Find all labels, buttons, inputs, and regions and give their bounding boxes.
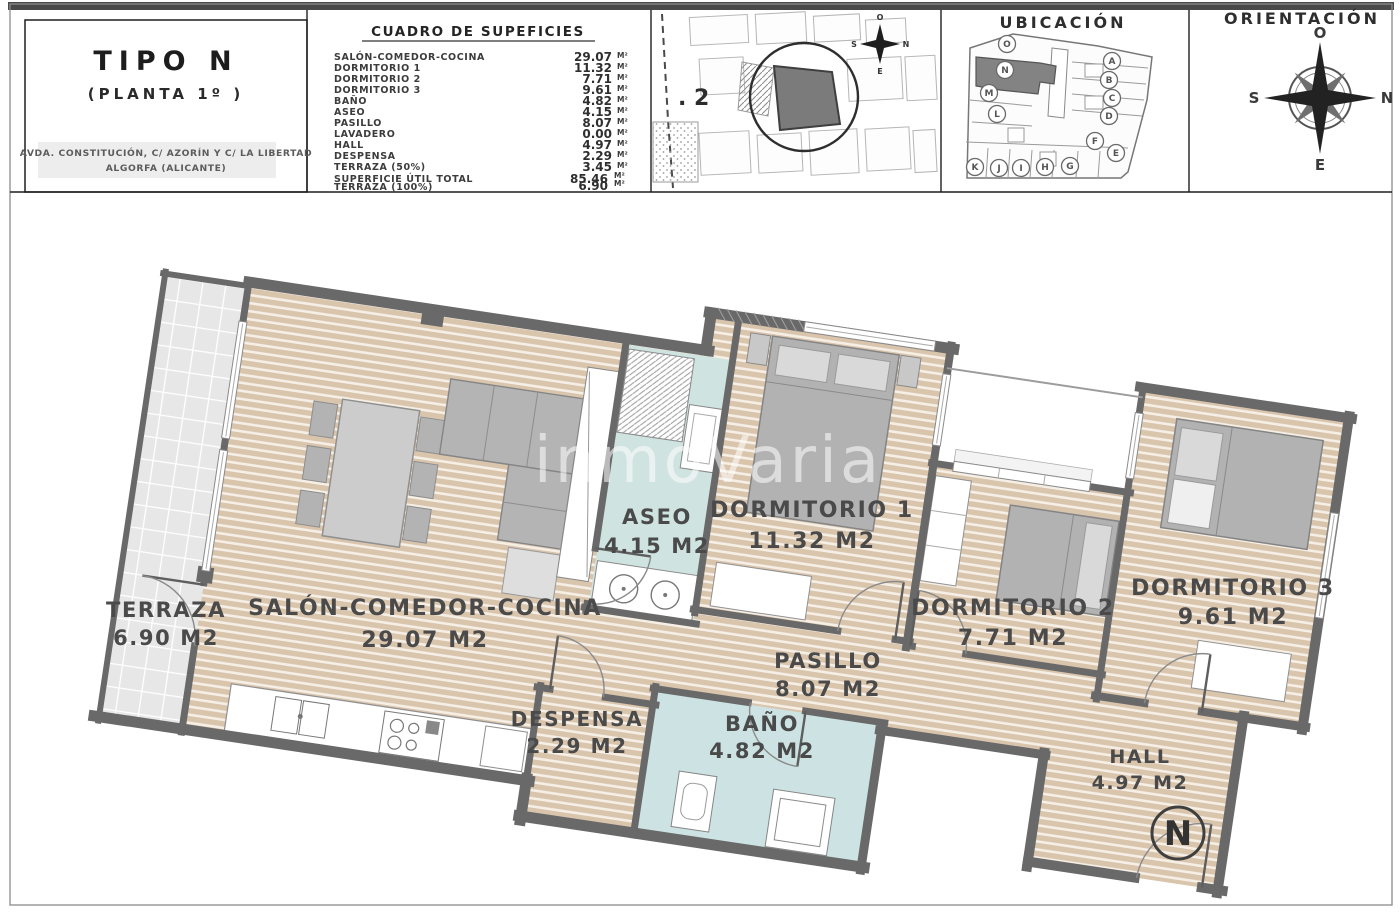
ubicacion-block-plan: O N M L A B C D F E K J I H G — [966, 34, 1152, 178]
svg-text:ASEO: ASEO — [334, 107, 365, 118]
kitchen-sink — [271, 697, 302, 734]
svg-text:G: G — [1066, 162, 1073, 172]
room-label-dorm1: DORMITORIO 1 — [710, 498, 914, 523]
room-label-terraza: TERRAZA — [106, 598, 226, 622]
svg-text:DORMITORIO 2: DORMITORIO 2 — [334, 74, 421, 85]
room-area-hall: 4.97 M2 — [1092, 772, 1189, 794]
svg-text:6.90: 6.90 — [578, 179, 608, 193]
area-table-totals: SUPERFICIE ÚTIL TOTAL85.46M² TERRAZA (10… — [334, 171, 625, 193]
floorplan-drawing — [88, 225, 1355, 916]
room-area-terraza: 6.90 M2 — [113, 626, 219, 650]
svg-text:M²: M² — [617, 106, 628, 115]
svg-text:N: N — [1001, 66, 1009, 76]
room-area-despensa: 2.29 M2 — [526, 734, 627, 758]
area-table-rows: SALÓN-COMEDOR-COCINA29.07M² DORMITORIO 1… — [334, 50, 628, 174]
title-block-panel: TIPO N (PLANTA 1º ) AVDA. CONSTITUCIÓN, … — [20, 20, 313, 192]
svg-text:M²: M² — [617, 84, 628, 93]
svg-text:M²: M² — [617, 95, 628, 104]
svg-text:M²: M² — [617, 150, 628, 159]
room-area-dorm1: 11.32 M2 — [748, 529, 875, 554]
toilet — [671, 771, 717, 832]
svg-text:M²: M² — [617, 161, 628, 170]
room-label-hall: HALL — [1109, 746, 1170, 768]
svg-text:DORMITORIO 3: DORMITORIO 3 — [334, 85, 421, 96]
siteplan-panel: . 2 O N S E — [653, 12, 937, 188]
plan-floor-subtitle: (PLANTA 1º ) — [88, 85, 244, 103]
room-label-dorm3: DORMITORIO 3 — [1131, 576, 1335, 601]
svg-text:M²: M² — [614, 179, 625, 188]
floorplan-sheet: TIPO N (PLANTA 1º ) AVDA. CONSTITUCIÓN, … — [0, 0, 1400, 916]
washing-machine — [765, 789, 835, 856]
room-label-dorm2: DORMITORIO 2 — [911, 596, 1115, 621]
ubicacion-panel: UBICACIÓN O N M L A B C D F E — [966, 13, 1152, 178]
svg-text:A: A — [1109, 57, 1116, 67]
svg-text:L: L — [994, 110, 1000, 120]
svg-text:TERRAZA (100%): TERRAZA (100%) — [334, 182, 433, 193]
area-table-title: CUADRO DE SUPEFICIES — [371, 24, 585, 40]
svg-text:M²: M² — [617, 128, 628, 137]
svg-text:LAVADERO: LAVADERO — [334, 129, 395, 140]
site-compass-top: O — [877, 13, 884, 22]
watermark: inmoVaria — [534, 424, 882, 498]
stove — [379, 711, 445, 761]
svg-text:O: O — [1003, 40, 1011, 50]
area-table-panel: CUADRO DE SUPEFICIES SALÓN-COMEDOR-COCIN… — [334, 24, 628, 193]
top-bar — [8, 2, 1394, 10]
svg-text:DESPENSA: DESPENSA — [334, 151, 396, 162]
svg-text:DORMITORIO 1: DORMITORIO 1 — [334, 63, 421, 74]
svg-text:C: C — [1109, 94, 1116, 104]
site-compass-bottom: E — [877, 67, 882, 76]
side-table — [502, 547, 560, 600]
room-label-bano: BAÑO — [725, 711, 799, 736]
room-label-pasillo: PASILLO — [774, 649, 882, 673]
site-parcel-label: . 2 — [678, 86, 709, 111]
svg-text:H: H — [1041, 163, 1049, 173]
room-area-aseo: 4.15 M2 — [604, 534, 710, 558]
svg-text:F: F — [1092, 137, 1098, 147]
svg-text:I: I — [1019, 164, 1022, 174]
table-total-row: TERRAZA (100%)6.90M² — [334, 179, 625, 193]
svg-text:M: M — [985, 89, 994, 99]
compass-right-letter: N — [1381, 89, 1394, 107]
svg-text:J: J — [996, 164, 1000, 174]
site-stippled-block — [653, 122, 698, 182]
svg-text:M²: M² — [617, 51, 628, 60]
ubicacion-title: UBICACIÓN — [1000, 13, 1127, 32]
site-compass-right: N — [903, 40, 910, 49]
svg-text:M²: M² — [617, 117, 628, 126]
site-highlighted-parcel — [774, 66, 840, 130]
sheet-svg: TIPO N (PLANTA 1º ) AVDA. CONSTITUCIÓN, … — [0, 0, 1400, 916]
room-area-pasillo: 8.07 M2 — [775, 677, 881, 701]
svg-text:PASILLO: PASILLO — [334, 118, 382, 129]
site-compass-left: S — [851, 40, 857, 49]
unit-marker-letter: N — [1164, 814, 1192, 854]
address-line1: AVDA. CONSTITUCIÓN, C/ AZORÍN Y C/ LA LI… — [20, 147, 313, 159]
kitchen-appliance — [480, 726, 527, 772]
compass-bottom-letter: E — [1315, 156, 1325, 174]
room-label-salon: SALÓN-COMEDOR-COCINA — [248, 595, 602, 621]
address-line2: ALGORFA (ALICANTE) — [106, 163, 227, 174]
plan-type-title: TIPO N — [93, 46, 238, 77]
compass-top-letter: O — [1314, 24, 1327, 42]
siteplan-map: . 2 O N S E — [653, 12, 937, 188]
svg-text:B: B — [1106, 76, 1113, 86]
room-area-dorm2: 7.71 M2 — [958, 626, 1068, 651]
svg-text:M²: M² — [617, 139, 628, 148]
compass-left-letter: S — [1249, 89, 1260, 107]
svg-text:SALÓN-COMEDOR-COCINA: SALÓN-COMEDOR-COCINA — [334, 51, 485, 63]
svg-text:E: E — [1113, 149, 1119, 159]
wall-pillar — [421, 306, 445, 327]
svg-text:BAÑO: BAÑO — [334, 96, 367, 107]
svg-text:M²: M² — [617, 73, 628, 82]
orientacion-panel: ORIENTACIÓN O N S E — [1224, 9, 1393, 174]
svg-text:TERRAZA (50%): TERRAZA (50%) — [334, 162, 426, 173]
svg-text:K: K — [972, 163, 980, 173]
orientacion-title: ORIENTACIÓN — [1224, 9, 1380, 28]
room-label-despensa: DESPENSA — [511, 707, 643, 731]
compass-rose-icon: O N S E — [1249, 24, 1394, 174]
room-area-salon: 29.07 M2 — [361, 628, 488, 653]
svg-text:M²: M² — [617, 62, 628, 71]
room-label-aseo: ASEO — [622, 505, 692, 529]
room-area-dorm3: 9.61 M2 — [1178, 605, 1288, 630]
svg-text:HALL: HALL — [334, 140, 364, 151]
room-area-bano: 4.82 M2 — [709, 739, 815, 763]
svg-text:D: D — [1105, 112, 1112, 122]
